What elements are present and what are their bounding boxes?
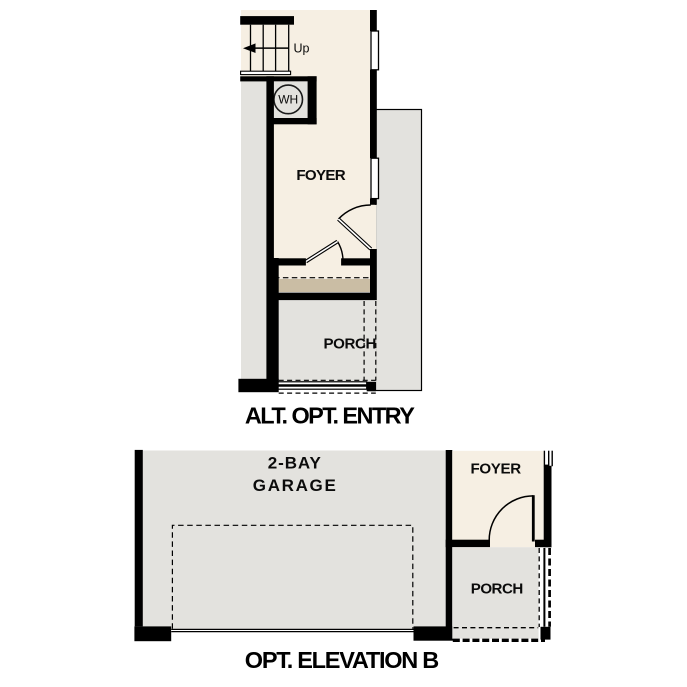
svg-text:FOYER: FOYER (470, 461, 521, 478)
svg-text:FOYER: FOYER (296, 167, 345, 184)
svg-text:WH: WH (278, 93, 298, 107)
svg-text:OPT. ELEVATION B: OPT. ELEVATION B (245, 647, 439, 673)
svg-text:PORCH: PORCH (471, 581, 524, 598)
svg-text:2-BAY: 2-BAY (268, 453, 322, 472)
svg-text:PORCH: PORCH (323, 335, 376, 352)
svg-text:ALT. OPT. ENTRY: ALT. OPT. ENTRY (245, 403, 415, 429)
svg-text:Up: Up (294, 41, 310, 55)
